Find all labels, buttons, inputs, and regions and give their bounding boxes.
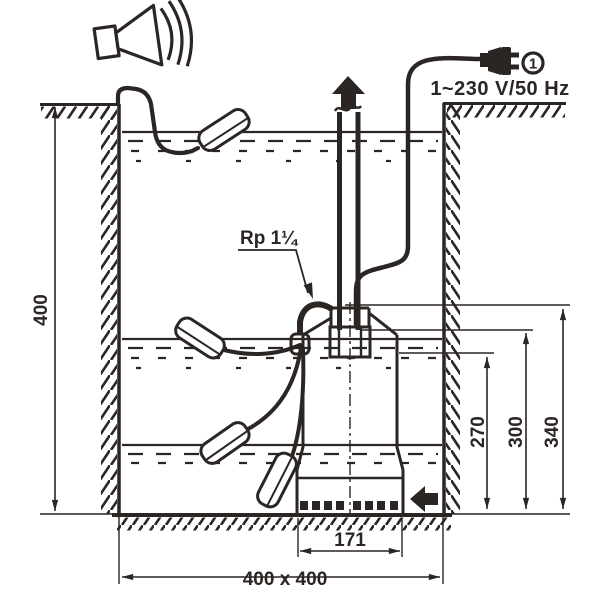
dim-pit-label: 400 x 400	[243, 569, 328, 590]
dim-300-label: 300	[506, 416, 527, 448]
horn-speaker-icon	[91, 0, 195, 78]
dim-340-label: 340	[542, 416, 563, 448]
dim-171-label: 171	[334, 530, 366, 551]
float-switch-off	[197, 419, 252, 467]
dim-270-label: 270	[468, 416, 489, 448]
connection-callout: Rp 1¼	[238, 228, 313, 299]
wall-hatch-right	[446, 105, 460, 514]
ground-hatch-right	[447, 105, 565, 118]
phase-badge: 1	[529, 56, 537, 73]
up-arrow-icon	[332, 76, 365, 109]
connection-label: Rp 1¼	[240, 228, 299, 249]
mains-plug-icon	[480, 47, 519, 75]
pump-pit-drawing: 1 1~230 V/50 Hz	[0, 0, 600, 600]
suction-strainer	[300, 501, 398, 510]
floor-hatch	[117, 518, 451, 531]
wall-hatch-left	[101, 106, 117, 514]
water-level-mid	[122, 339, 442, 368]
pump	[291, 302, 403, 513]
float-switch-rest	[254, 450, 299, 510]
installation-diagram: 1 1~230 V/50 Hz	[0, 0, 600, 600]
sound-waves-icon	[160, 0, 196, 69]
power-label: 1~230 V/50 Hz	[430, 78, 569, 100]
alarm-float-cable	[118, 88, 198, 153]
float-switch-on	[172, 315, 228, 362]
dim-depth-label: 400	[31, 294, 52, 326]
left-arrow-icon	[410, 486, 438, 512]
water-level-high	[122, 132, 442, 161]
float-switch-alarm	[195, 106, 252, 154]
